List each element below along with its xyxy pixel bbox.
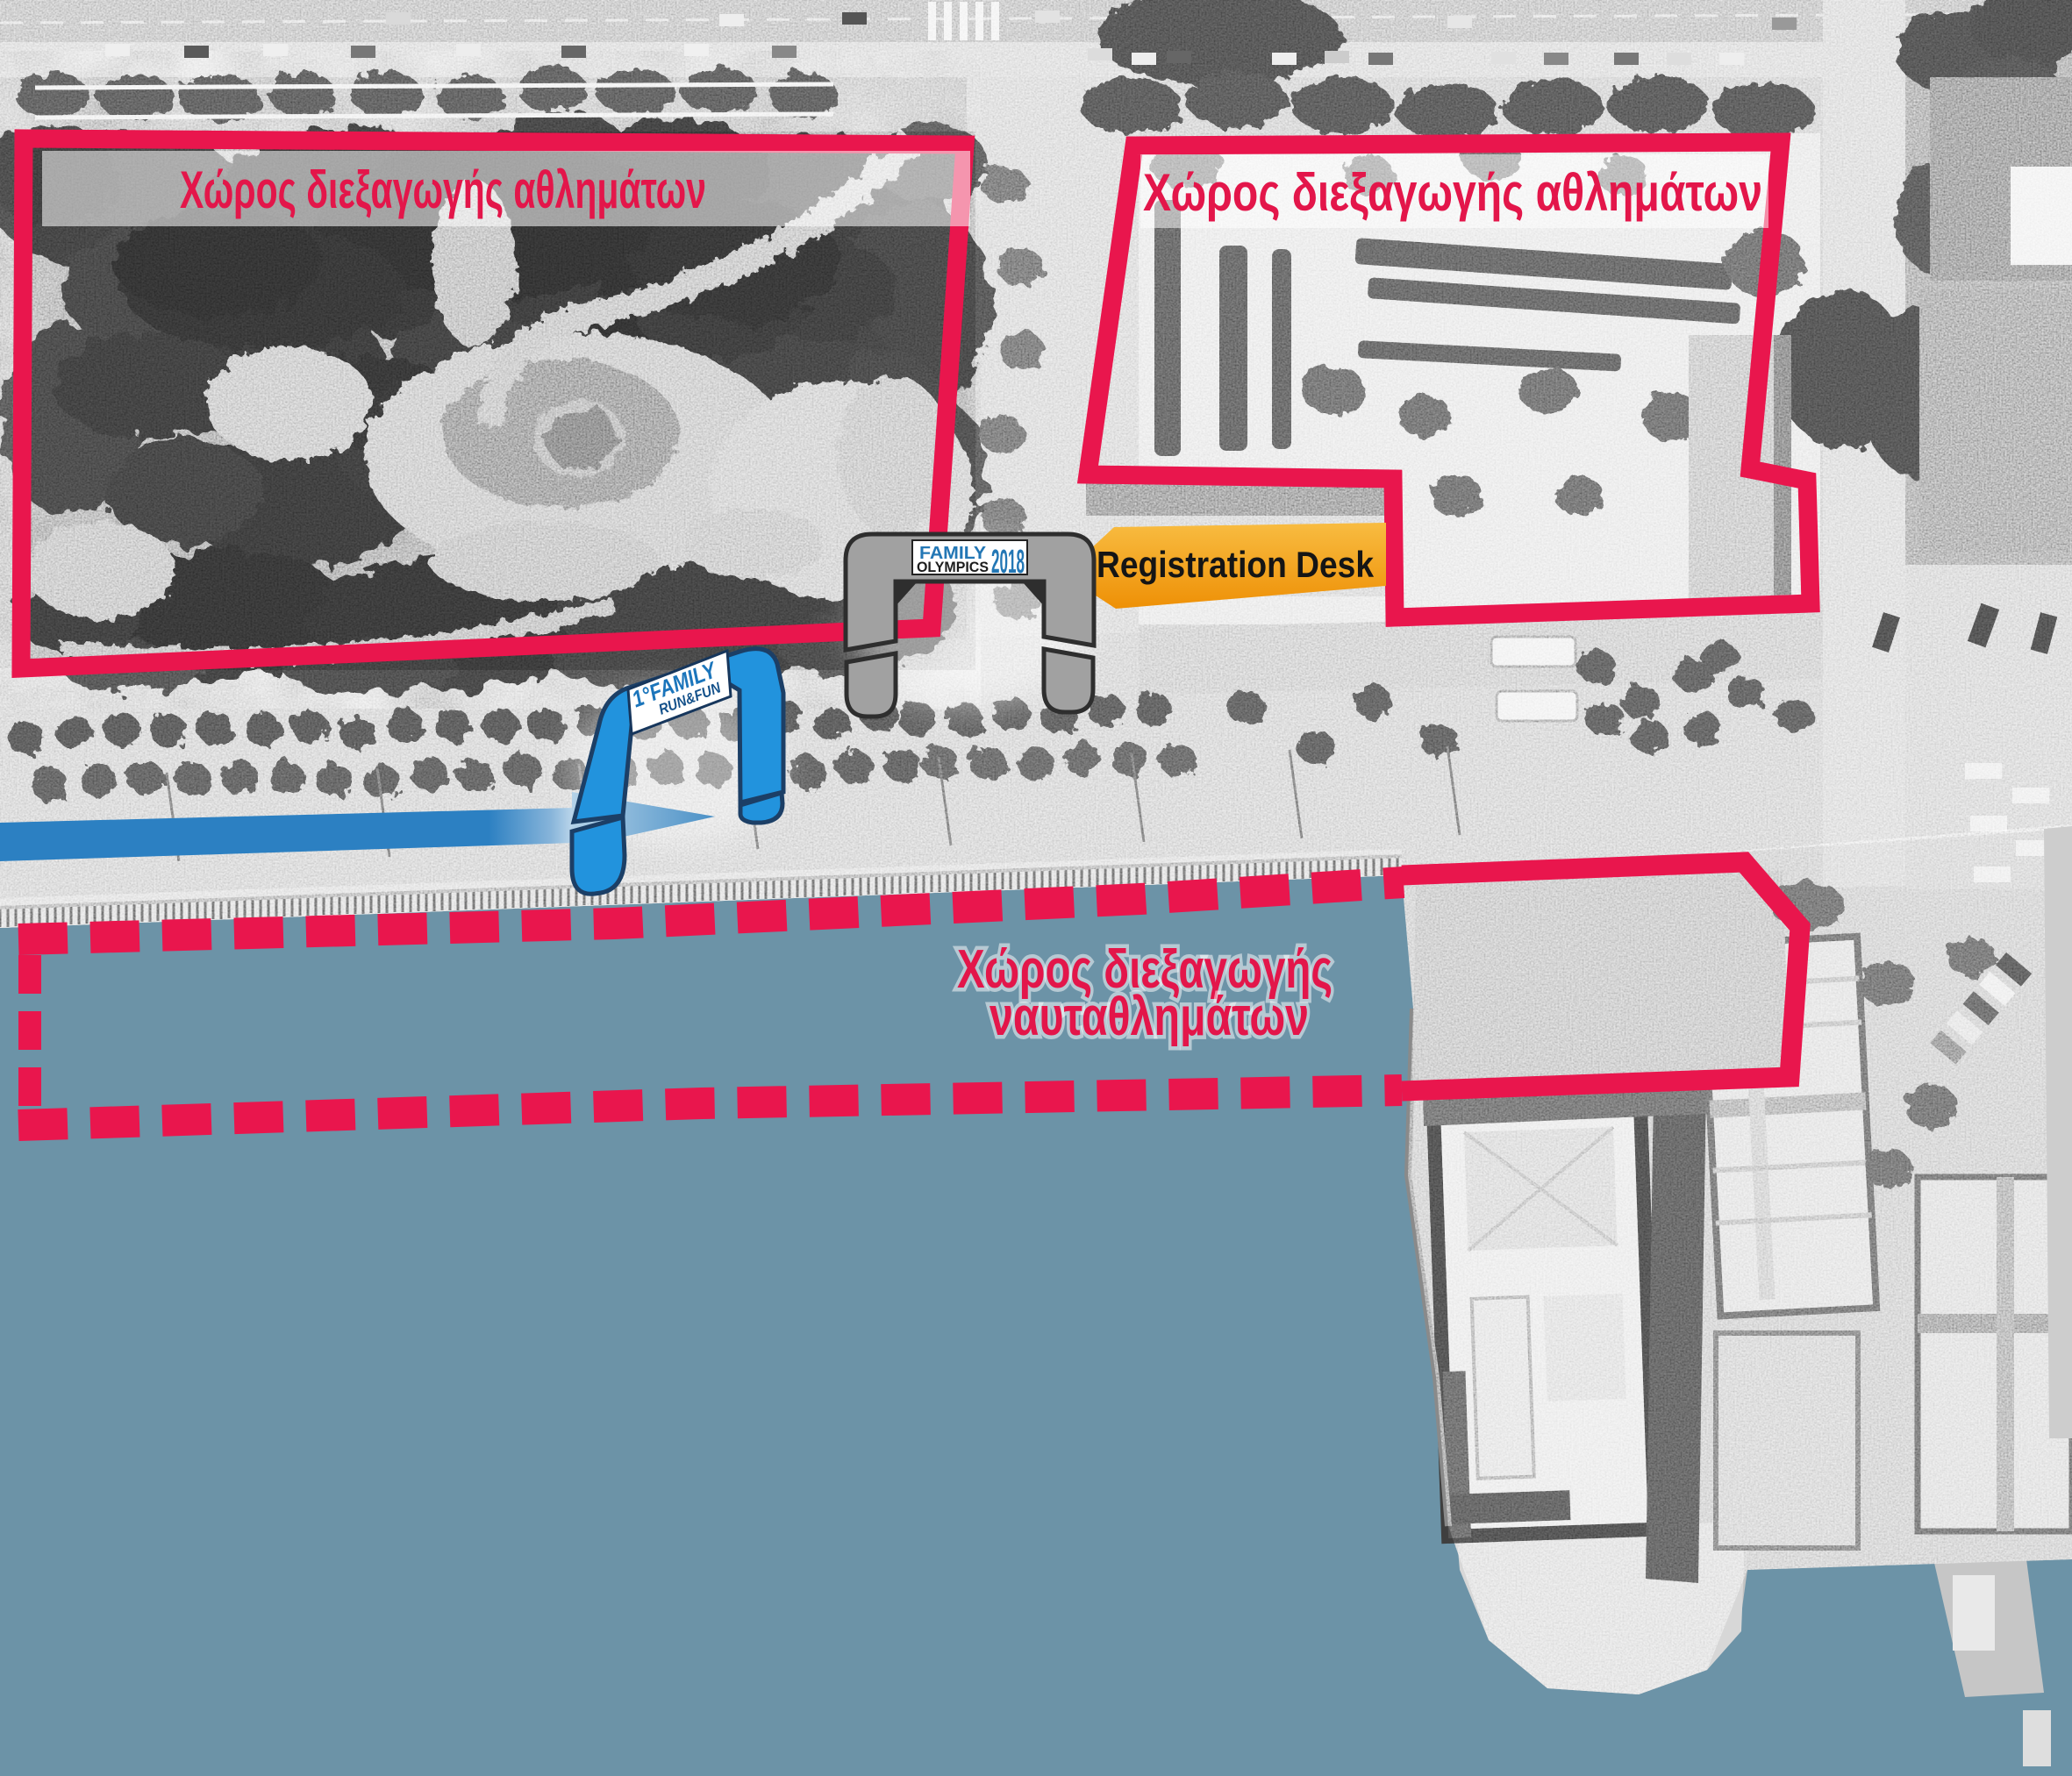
svg-text:Registration Desk: Registration Desk — [1097, 544, 1375, 585]
svg-text:OLYMPICS: OLYMPICS — [917, 559, 989, 575]
svg-text:ναυταθλημάτων: ναυταθλημάτων — [990, 987, 1309, 1047]
svg-text:2018: 2018 — [991, 544, 1025, 581]
svg-text:Χώρος διεξαγωγής αθλημάτων: Χώρος διεξαγωγής αθλημάτων — [180, 160, 706, 219]
svg-text:Χώρος διεξαγωγής αθλημάτων: Χώρος διεξαγωγής αθλημάτων — [1143, 163, 1762, 222]
